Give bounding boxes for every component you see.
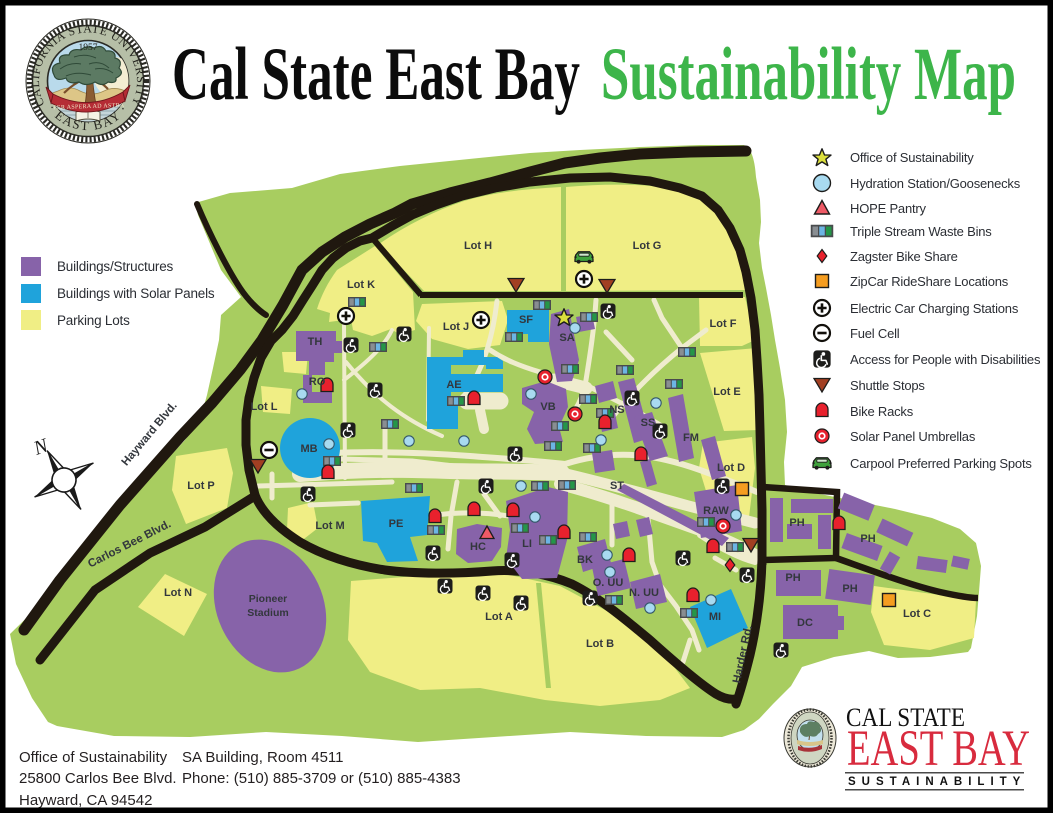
svg-text:Zagster Bike Share: Zagster Bike Share <box>850 249 958 264</box>
svg-text:Lot J: Lot J <box>443 321 469 333</box>
svg-text:Hayward, CA 94542: Hayward, CA 94542 <box>19 792 152 809</box>
svg-text:NS: NS <box>609 404 624 416</box>
svg-text:SS: SS <box>641 417 656 429</box>
svg-text:Lot L: Lot L <box>251 401 278 413</box>
svg-text:N. UU: N. UU <box>629 587 659 599</box>
svg-text:Office of Sustainability: Office of Sustainability <box>850 150 974 165</box>
svg-text:Stadium: Stadium <box>247 607 288 619</box>
svg-text:Office of Sustainability: Office of Sustainability <box>19 749 168 766</box>
svg-text:Lot P: Lot P <box>187 480 215 492</box>
svg-text:SUSTAINABILITY: SUSTAINABILITY <box>848 776 1026 788</box>
svg-text:TH: TH <box>308 336 323 348</box>
svg-text:Triple Stream Waste Bins: Triple Stream Waste Bins <box>850 224 992 239</box>
svg-text:Carpool Preferred Parking Spot: Carpool Preferred Parking Spots <box>850 456 1032 471</box>
svg-text:MI: MI <box>709 611 721 623</box>
svg-text:Phone: (510) 885-3709 or (510): Phone: (510) 885-3709 or (510) 885-4383 <box>182 770 461 787</box>
svg-text:25800 Carlos Bee Blvd.: 25800 Carlos Bee Blvd. <box>19 770 177 787</box>
svg-text:Hydration Station/Goosenecks: Hydration Station/Goosenecks <box>850 176 1021 191</box>
svg-text:PH: PH <box>785 572 800 584</box>
svg-text:PH: PH <box>789 517 804 529</box>
svg-text:Parking Lots: Parking Lots <box>57 313 130 328</box>
svg-text:VB: VB <box>540 401 555 413</box>
svg-text:Lot D: Lot D <box>717 462 745 474</box>
svg-text:Access for People with Disabil: Access for People with Disabilities <box>850 352 1041 367</box>
svg-text:HOPE Pantry: HOPE Pantry <box>850 201 927 216</box>
svg-text:Lot F: Lot F <box>710 318 737 330</box>
svg-text:SA Building, Room 4511: SA Building, Room 4511 <box>182 749 344 766</box>
svg-text:Lot B: Lot B <box>586 638 614 650</box>
svg-text:Lot N: Lot N <box>164 587 192 599</box>
svg-text:Lot M: Lot M <box>315 520 344 532</box>
svg-text:BK: BK <box>577 554 593 566</box>
svg-text:Lot G: Lot G <box>633 240 662 252</box>
svg-text:Electric Car Charging Stations: Electric Car Charging Stations <box>850 301 1019 316</box>
svg-text:Buildings/Structures: Buildings/Structures <box>57 259 174 274</box>
svg-text:EAST BAY: EAST BAY <box>847 721 1030 777</box>
svg-text:Lot K: Lot K <box>347 279 375 291</box>
svg-text:SF: SF <box>519 314 533 326</box>
svg-text:Lot C: Lot C <box>903 608 931 620</box>
svg-text:PE: PE <box>389 518 404 530</box>
svg-text:DC: DC <box>797 617 813 629</box>
svg-text:RO: RO <box>309 376 326 388</box>
svg-text:AE: AE <box>446 379 461 391</box>
svg-text:O. UU: O. UU <box>593 577 624 589</box>
svg-text:Lot E: Lot E <box>713 386 741 398</box>
svg-text:Cal State East Bay: Cal State East Bay <box>172 33 580 116</box>
svg-text:PH: PH <box>860 533 875 545</box>
svg-text:Sustainability Map: Sustainability Map <box>601 33 1016 116</box>
svg-text:Lot H: Lot H <box>464 240 492 252</box>
svg-text:Bike Racks: Bike Racks <box>850 404 914 419</box>
svg-text:ST: ST <box>610 480 624 492</box>
svg-text:Lot A: Lot A <box>485 611 513 623</box>
svg-text:SA: SA <box>559 332 574 344</box>
svg-text:1957: 1957 <box>79 43 98 53</box>
svg-text:ZipCar RideShare Locations: ZipCar RideShare Locations <box>850 274 1009 289</box>
svg-text:RAW: RAW <box>703 505 729 517</box>
svg-text:Buildings with Solar Panels: Buildings with Solar Panels <box>57 286 215 301</box>
svg-text:FM: FM <box>683 432 699 444</box>
svg-text:PH: PH <box>842 583 857 595</box>
svg-text:LI: LI <box>522 538 532 550</box>
svg-text:Fuel Cell: Fuel Cell <box>850 326 900 341</box>
svg-text:MB: MB <box>300 443 317 455</box>
svg-text:HC: HC <box>470 541 486 553</box>
svg-text:Shuttle Stops: Shuttle Stops <box>850 378 925 393</box>
svg-text:Solar Panel Umbrellas: Solar Panel Umbrellas <box>850 429 976 444</box>
svg-text:Pioneer: Pioneer <box>249 593 288 605</box>
